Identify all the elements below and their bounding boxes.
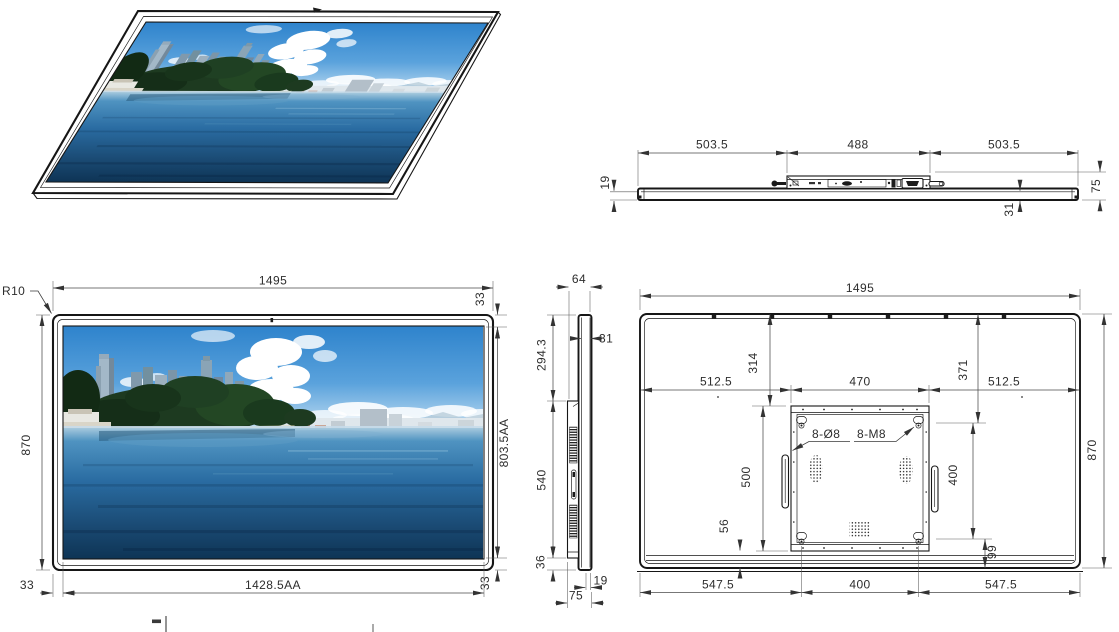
dim-top-left-span: 503.5 [696,138,728,152]
vent-holes-right [899,456,913,484]
dim-rear-overall-width: 1495 [846,281,874,295]
sheet-edge-marks [152,616,373,632]
dim-top-center-span: 488 [847,138,868,152]
top-profile-view: 503.5 488 503.5 19 31 75 [598,138,1106,217]
dim-front-bottom-bezel: 33 [478,576,492,590]
dim-top-glass-thickness: 19 [598,175,612,189]
dim-front-top-bezel: 33 [473,292,487,306]
dim-rear-overall-height: 870 [1085,439,1099,460]
dim-side-top-depth: 64 [572,272,586,286]
dim-rear-top-to-hole: 371 [956,359,970,380]
dim-rear-mount-height: 500 [739,466,753,487]
vent-holes-left [809,455,823,483]
dim-front-overall-height: 870 [19,434,33,455]
dim-side-glass-thickness: 19 [594,574,608,588]
perspective-photo [40,22,502,183]
dim-rear-top-to-mount: 314 [746,352,760,373]
side-vent-lower [570,505,578,538]
perspective-view [33,8,503,200]
rear-connector-bracket [772,176,945,189]
dim-rear-hole-spacing-h: 400 [849,578,870,592]
side-view: 64 31 294.3 540 36 19 75 [534,272,614,608]
dim-top-panel-thickness: 31 [1002,202,1016,216]
dim-front-corner-radius: R10 [2,284,25,298]
dim-top-total-depth: 75 [1089,179,1103,193]
dim-rear-bottom-left-span: 547.5 [702,578,734,592]
dim-rear-bottom-right-span: 547.5 [985,578,1017,592]
dim-side-total-depth: 75 [569,589,583,603]
callout-holes-diameter: 8-Ø8 [812,427,840,441]
front-photo [56,326,501,559]
dim-side-top-to-mount: 294.3 [535,339,549,371]
dim-rear-hole-to-bottom: 99 [985,545,999,559]
dim-rear-left-span: 512.5 [700,375,732,389]
dim-rear-hole-spacing-v: 400 [946,464,960,485]
dim-front-left-bezel: 33 [20,578,34,592]
dim-side-mount-height: 540 [535,469,549,490]
dim-rear-right-span: 512.5 [988,375,1020,389]
dim-front-overall-width: 1495 [259,274,287,288]
vent-holes-bottom [850,521,871,538]
side-vent-upper [570,427,578,463]
rear-view: 8-Ø8 8-M8 1495 870 512.5 470 512.5 314 3… [637,281,1112,597]
dim-front-active-width: 1428.5AA [245,578,301,592]
callout-holes-thread: 8-M8 [857,427,886,441]
dim-side-mount-to-bottom: 36 [534,555,548,569]
engineering-drawing-sheet: 503.5 488 503.5 19 31 75 1495 R10 870 [0,0,1119,632]
dim-rear-mount-to-bottom: 56 [717,519,731,533]
front-view: 1495 R10 870 33 803.5AA 33 33 1428.5AA [2,274,511,598]
dim-top-right-span: 503.5 [988,138,1020,152]
dim-side-panel-depth: 31 [599,332,613,346]
dim-rear-mount-width: 470 [849,375,870,389]
bezel-sensor-mark [271,318,274,322]
dim-front-active-height: 803.5AA [497,419,511,468]
